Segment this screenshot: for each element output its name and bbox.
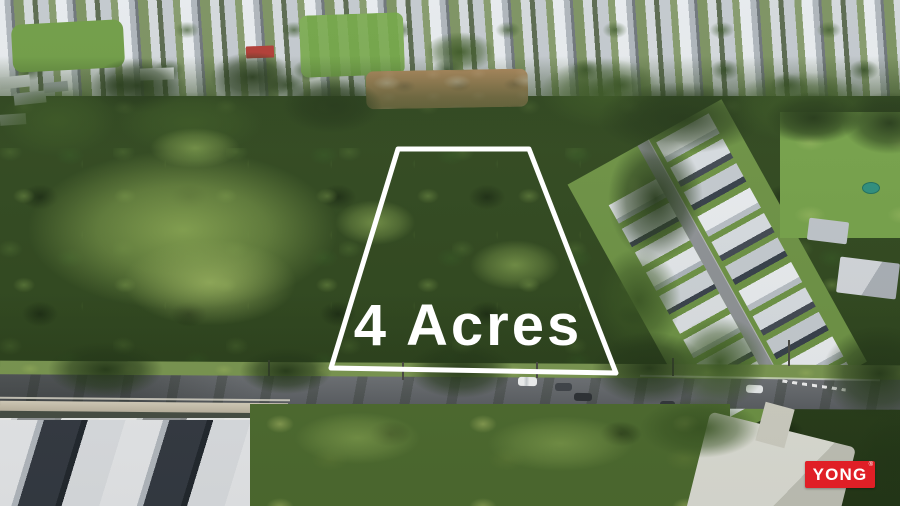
registered-mark-icon: ® [869,462,873,468]
brand-badge-text: YONG [813,466,868,483]
brand-badge: YONG ® [805,461,875,488]
boundary-outline [0,0,900,506]
area-label: 4 Acres [346,297,590,355]
aerial-photo: 4 Acres YONG ® [0,0,900,506]
